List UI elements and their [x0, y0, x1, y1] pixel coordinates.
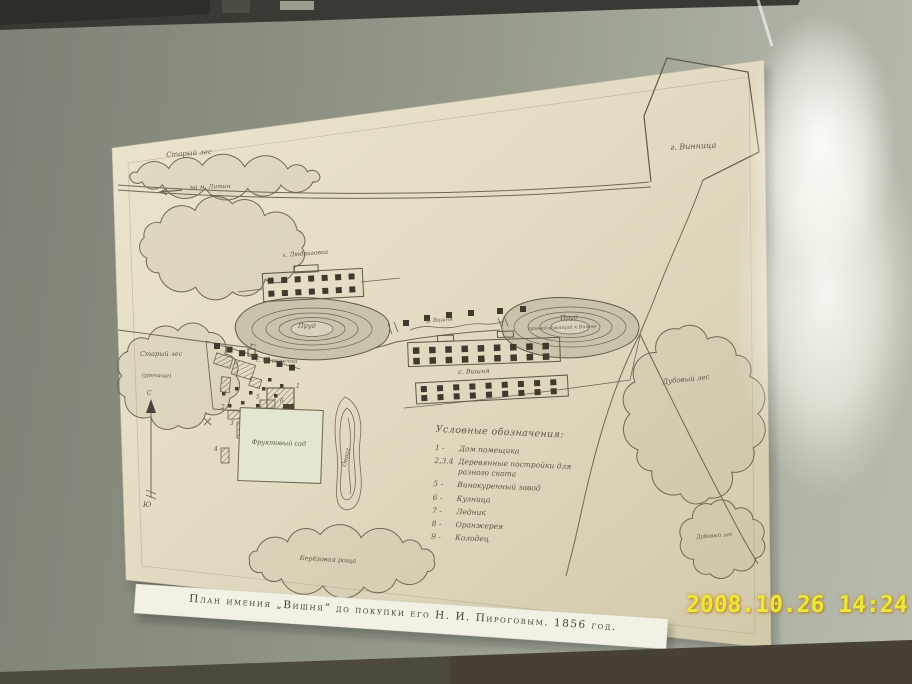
square-marker: [413, 347, 420, 354]
square-marker: [543, 353, 550, 360]
square-marker: [534, 389, 540, 395]
square-marker: [502, 391, 508, 397]
square-marker: [485, 383, 491, 389]
square-marker: [429, 347, 436, 354]
square-marker: [295, 276, 301, 282]
square-marker: [321, 275, 327, 281]
label-forest-left: Старый лес: [140, 350, 182, 358]
square-marker: [454, 393, 460, 399]
legend-item-number: 5 -: [433, 479, 457, 490]
square-marker: [469, 383, 475, 389]
square-marker: [268, 278, 274, 284]
square-marker: [446, 357, 453, 364]
square-marker: [429, 357, 436, 364]
compass-south-letter: Ю: [143, 501, 151, 509]
legend-items: 1 -Дом помещика2,3,4Деревянные постройки…: [431, 443, 617, 550]
label-pond-right: Пруд: [560, 313, 578, 322]
square-marker: [295, 289, 301, 295]
square-marker: [445, 346, 452, 353]
square-marker: [421, 395, 427, 401]
legend-item-text: Деревянные постройки для разного скота: [458, 457, 589, 482]
square-marker: [281, 277, 287, 283]
label-village-vishnya: с. Вишня: [458, 367, 490, 376]
compass-north-letter: С: [147, 390, 152, 397]
square-marker: [289, 365, 295, 371]
label-forest-left-note: (урочище): [142, 372, 172, 379]
plot-number: 3: [230, 420, 234, 427]
frame-tag-light: [280, 1, 314, 10]
glass-edge-reflection: [758, 0, 772, 46]
square-marker: [308, 275, 314, 281]
camera-timestamp: 2008.10.26 14:24: [686, 592, 908, 618]
square-marker: [461, 346, 468, 353]
plot-number: 6: [280, 398, 284, 405]
legend-item-text: Винокуренный завод: [457, 480, 541, 493]
square-marker: [502, 382, 508, 388]
legend-item-number: 8 -: [431, 519, 455, 530]
legend-item-number: 1 -: [435, 443, 459, 454]
square-marker: [335, 274, 341, 280]
square-marker: [550, 379, 556, 385]
square-marker: [510, 344, 517, 351]
square-marker: [462, 356, 469, 363]
frame-bottom-right-dark: [450, 640, 912, 684]
legend-item-number: 2,3,4: [434, 456, 459, 477]
square-marker: [268, 291, 274, 297]
square-marker: [214, 343, 220, 349]
square-marker: [542, 343, 549, 350]
square-marker: [309, 288, 315, 294]
frame-tag-dark: [222, 0, 250, 13]
square-marker: [486, 392, 492, 398]
legend-item-number: 7 -: [432, 506, 456, 517]
square-marker: [421, 386, 427, 392]
square-marker: [478, 355, 485, 362]
square-marker: [349, 286, 355, 292]
plot-number: 4: [214, 446, 218, 453]
square-marker: [518, 381, 524, 387]
plot-number: 1: [296, 383, 300, 390]
square-marker: [239, 350, 245, 356]
square-marker: [282, 290, 288, 296]
label-road-litin: на м. Литин: [190, 183, 231, 191]
map-legend: Условные обозначения: 1 -Дом помещика2,3…: [431, 424, 618, 553]
plot-number: 5: [256, 394, 260, 401]
plot-number: 2: [221, 404, 225, 411]
square-marker: [551, 388, 557, 394]
square-marker: [227, 347, 233, 353]
square-marker: [413, 358, 420, 365]
photo-scene: Старый лес на м. Литин г. Винница х. Люд…: [0, 0, 912, 684]
square-marker: [534, 380, 540, 386]
legend-item-text: Колодец: [455, 533, 489, 544]
square-marker: [526, 354, 533, 361]
square-marker: [478, 345, 485, 352]
legend-item-number: 9 -: [431, 532, 455, 543]
square-marker: [494, 355, 501, 362]
square-marker: [470, 392, 476, 398]
map-photo-svg: [0, 0, 912, 684]
square-marker: [494, 344, 501, 351]
square-marker: [510, 354, 517, 361]
legend-item-text: Дом помещика: [459, 444, 520, 456]
square-marker: [336, 287, 342, 293]
legend-item-text: Кузница: [457, 493, 491, 504]
label-pond-left: Пруд: [298, 322, 316, 330]
square-marker: [453, 384, 459, 390]
square-marker: [526, 343, 533, 350]
legend-item-text: Ледник: [456, 507, 486, 518]
square-marker: [437, 394, 443, 400]
square-marker: [518, 390, 524, 396]
legend-item-text: Оранжерея: [455, 520, 503, 532]
legend-item-number: 6 -: [433, 492, 457, 503]
square-marker: [437, 385, 443, 391]
square-marker: [348, 273, 354, 279]
square-marker: [322, 288, 328, 294]
